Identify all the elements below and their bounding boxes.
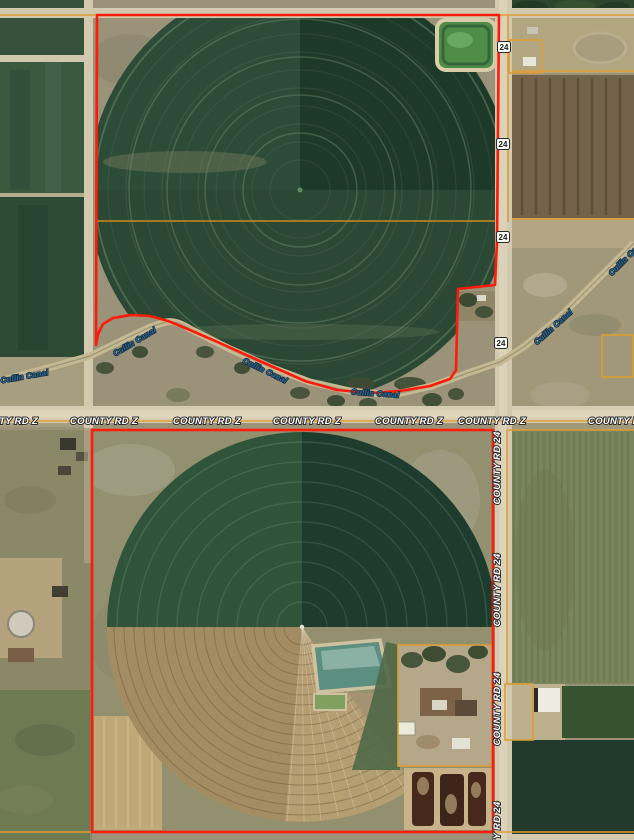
route-marker-label: 24 [499,140,508,149]
map-viewport[interactable]: 24 24 24 24 COUNTY RD Z COUNTY RD Z COUN… [0,0,634,840]
plowed-field [512,75,634,218]
tank [8,611,34,637]
route-marker-24: 24 [497,232,510,243]
building [52,586,68,597]
county-rd-24-label: COUNTY RD 24 [492,553,503,627]
oval-track [574,33,626,63]
pen-mottle [417,777,429,795]
pasture-mottle [530,382,590,408]
field-texture [10,70,30,190]
route-marker-label: 24 [500,43,509,52]
tree [475,306,493,318]
pivot-center [298,188,303,193]
route-marker-24: 24 [498,42,511,53]
pond-small [314,694,346,710]
green-field [562,686,634,738]
pasture-mottle [569,314,621,336]
dirt-patch [416,735,440,749]
tree [459,293,477,307]
county-rd-24-label: COUNTY RD 24 [492,672,503,746]
dirt-patch [8,648,34,662]
feedlot-pen [468,772,486,826]
building [527,27,538,34]
upper-pond [437,20,495,70]
farm-yard [0,558,62,658]
left-road [84,0,93,428]
tree [401,652,423,668]
pond-shine [447,32,473,48]
pasture-mottle [15,724,75,756]
county-rd-24-label: COUNTY RD 24 [492,431,503,505]
building [398,722,415,735]
notch-farmstead [459,291,495,321]
county-rd-z-label: COUNTY RD Z [173,416,242,427]
field-tone [515,470,575,650]
dark-field [505,740,634,836]
county-rd-z-label: COUNTY RD Z [375,416,444,427]
field-road [0,55,88,62]
route-marker-label: 24 [499,233,508,242]
field-texture [18,205,48,350]
building [477,295,486,301]
field-texture [45,62,61,192]
county-rd-z-label: COUNTY RD Z [588,416,634,427]
building-shadow [534,688,538,712]
feedlot [404,768,492,830]
pasture-mottle [85,444,175,496]
building [58,466,71,475]
building [60,438,76,450]
building [455,700,477,716]
county-rd-z-label: COUNTY RD Z [458,416,527,427]
tree [422,646,446,662]
county-rd-z-label: COUNTY RD Z [0,416,39,427]
tree [468,645,488,659]
field-road [0,193,88,197]
road-strip [505,834,634,840]
pen-mottle [445,794,457,814]
aerial-map[interactable]: 24 24 24 24 COUNTY RD Z COUNTY RD Z COUN… [0,0,634,840]
pasture-mottle [4,486,56,514]
pivot-center [300,625,304,629]
building [452,738,470,749]
county-rd-z-label: COUNTY RD Z [273,416,342,427]
pen-mottle [471,782,481,798]
tan-strip [512,218,634,248]
top-road [0,8,634,18]
pasture-mottle [523,273,567,297]
building [523,57,536,66]
route-marker-label: 24 [497,339,506,348]
route-marker-24: 24 [495,338,508,349]
dry-streak [103,151,267,173]
lower-farmstead [398,645,492,766]
county-rd-24-label: COUNTY RD 24 [492,801,503,840]
route-marker-24: 24 [497,139,510,150]
lower-left-green-pasture [0,690,90,840]
tree [446,655,470,673]
building [432,700,447,710]
county-rd-z-label: COUNTY RD Z [70,416,139,427]
